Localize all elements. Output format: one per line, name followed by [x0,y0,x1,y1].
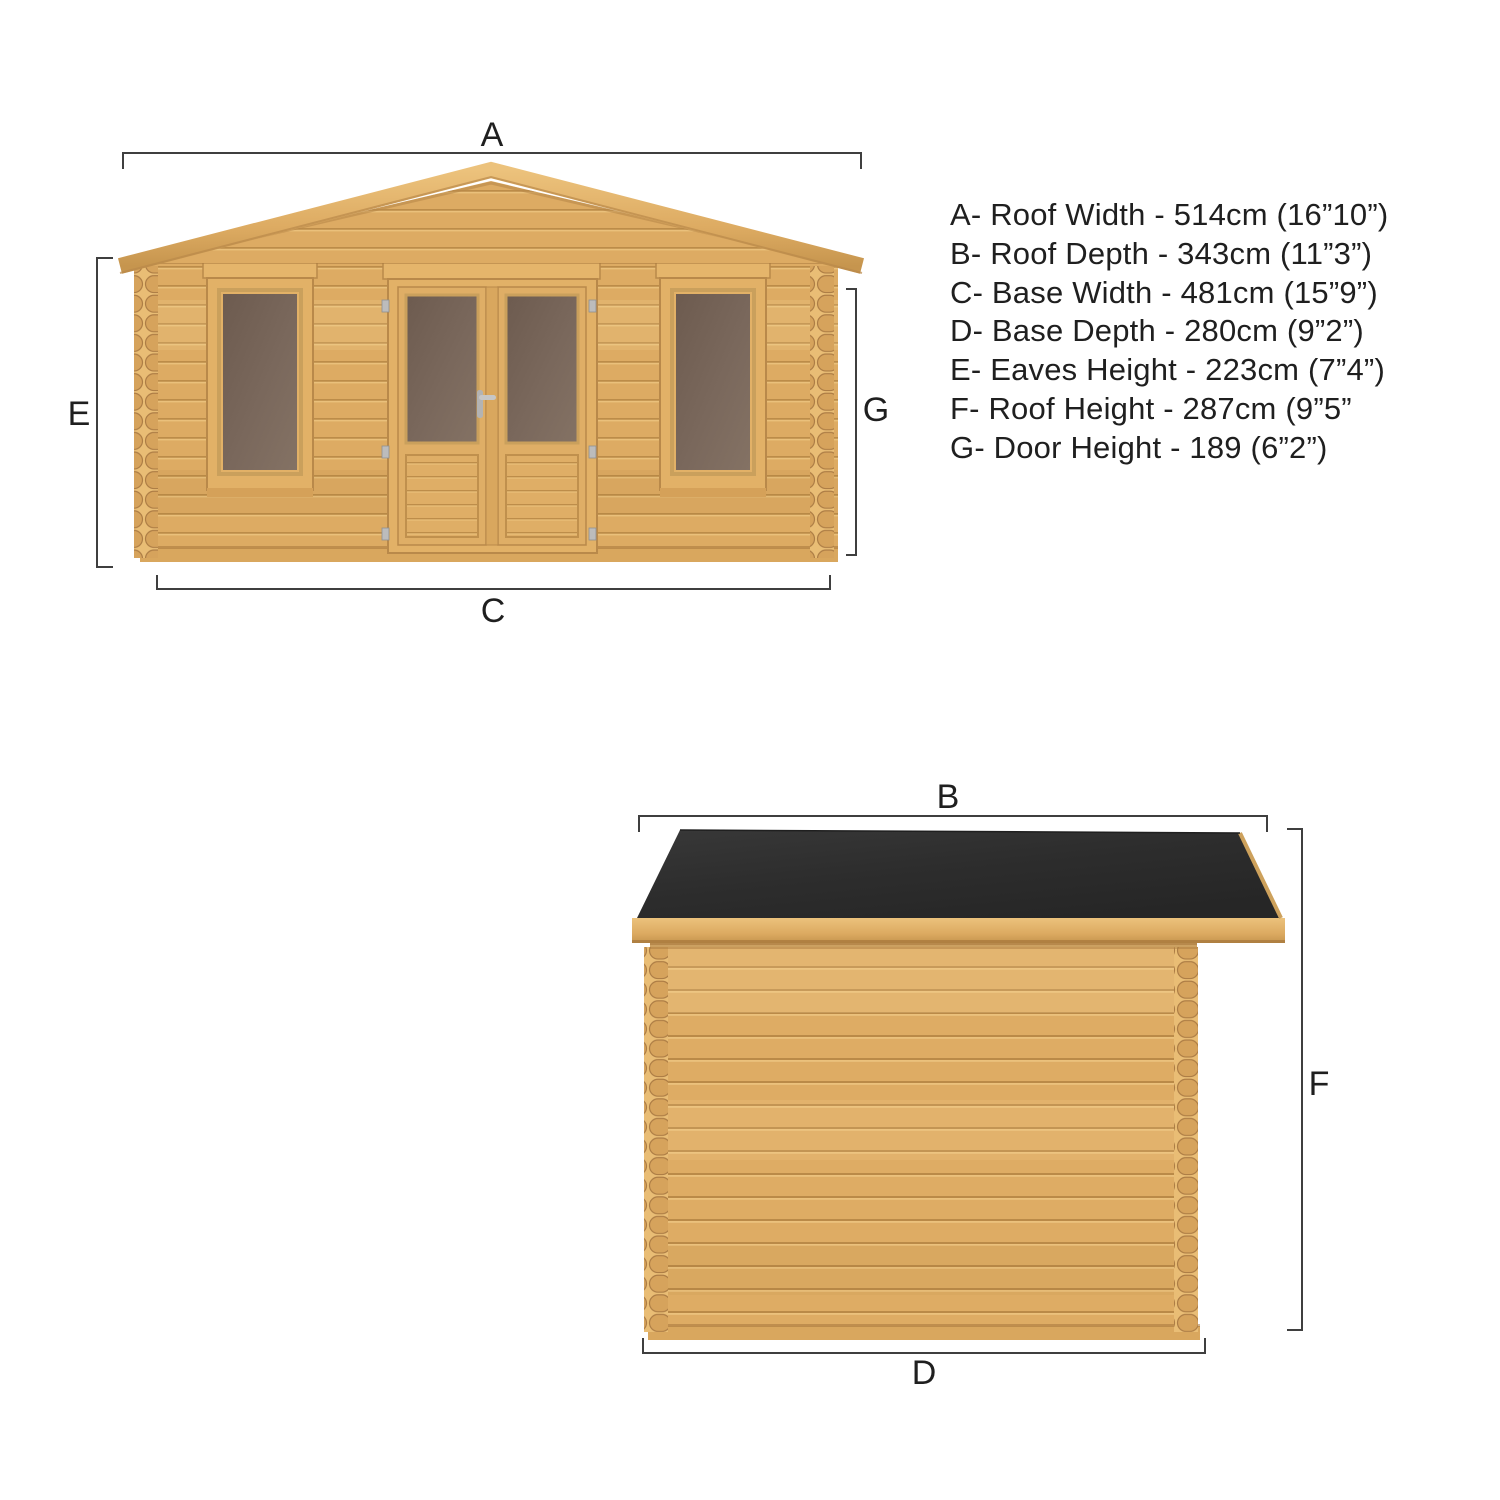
front-right-log-ends [810,266,834,558]
front-left-log-ends [134,266,158,558]
spec-line-eaves-height: E- Eaves Height - 223cm (7”4”) [950,351,1388,390]
front-elevation-view [120,170,862,562]
dim-bracket-d [643,1338,1205,1353]
dim-bracket-f [1287,829,1302,1330]
diagram-canvas: A E G C B F D A- Roof Width - 514cm (16”… [0,0,1500,1500]
dim-bracket-g [846,289,856,555]
dim-label-c: C [481,592,506,630]
door-left-glass [406,295,478,443]
spec-line-door-height: G- Door Height - 189 (6”2”) [950,429,1388,468]
door-left-panel [406,455,478,537]
dim-bracket-e [97,258,113,567]
roof-felt [637,830,1281,918]
dimension-list: A- Roof Width - 514cm (16”10”) B- Roof D… [950,196,1388,468]
dim-label-g: G [863,391,889,429]
side-right-log-ends [1174,947,1198,1332]
front-window-left [203,262,317,497]
spec-line-roof-width: A- Roof Width - 514cm (16”10”) [950,196,1388,235]
spec-line-base-width: C- Base Width - 481cm (15”9”) [950,274,1388,313]
side-left-log-ends [644,947,668,1332]
side-elevation-view [632,830,1285,1340]
dim-label-d: D [912,1354,937,1392]
spec-line-base-depth: D- Base Depth - 280cm (9”2”) [950,312,1388,351]
roof-fascia-band [632,918,1285,943]
dim-label-e: E [68,395,91,433]
gable-panel [148,181,834,263]
spec-line-roof-depth: B- Roof Depth - 343cm (11”3”) [950,235,1388,274]
side-roof [632,830,1285,943]
front-double-doors [382,262,600,553]
spec-line-roof-height: F- Roof Height - 287cm (9”5” [950,390,1388,429]
door-right-glass [506,295,578,443]
front-window-right-glass [676,294,750,470]
dim-label-b: B [937,778,960,816]
dim-bracket-c [157,575,830,589]
front-window-right [656,262,770,497]
front-apex-roof [120,170,862,273]
dim-label-f: F [1309,1065,1330,1103]
front-window-left-glass [223,294,297,470]
door-right-panel [506,455,578,537]
dim-label-a: A [481,116,504,154]
